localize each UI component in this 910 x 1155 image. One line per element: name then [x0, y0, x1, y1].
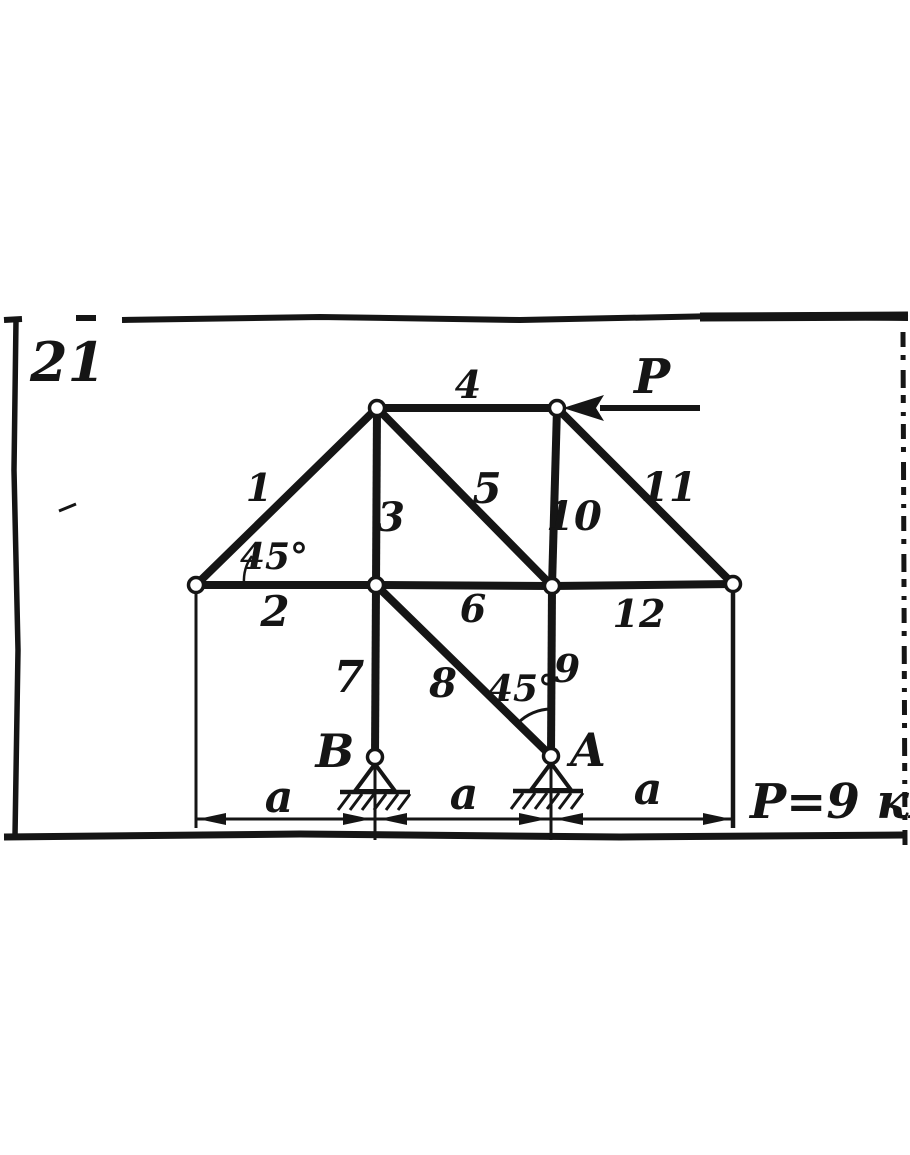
scanned-figure-page: 21 1 2 3 4 5 6 7 8 9 10 11 12 45° 45° B …: [0, 0, 910, 1155]
joint-mid-right: [545, 579, 560, 594]
angle-arc-a: [518, 709, 551, 723]
figure-border-right-dashed: [903, 332, 905, 845]
dim-arrow-a-right: [555, 813, 583, 825]
member-7-label: 7: [334, 652, 365, 703]
force-value-label: P=9 кН: [748, 774, 910, 830]
dim-arrow-a-left: [519, 813, 547, 825]
dim-arrow-b-right: [379, 813, 407, 825]
joint-top-left: [370, 401, 385, 416]
force-label: P: [632, 349, 672, 405]
truss-figure: 21 1 2 3 4 5 6 7 8 9 10 11 12 45° 45° B …: [0, 0, 910, 1155]
joint-top-right: [550, 401, 565, 416]
member-11-label: 11: [641, 464, 697, 511]
angle-label-left: 45°: [240, 536, 308, 578]
member-5-label: 5: [472, 464, 501, 513]
member-9-label: 9: [554, 646, 580, 691]
stray-mark: [59, 504, 76, 511]
member-4-label: 4: [455, 362, 481, 407]
member-10-label: 10: [546, 493, 602, 540]
member-12-label: 12: [613, 591, 666, 636]
figure-border-bottom: [4, 834, 903, 837]
support-b-label: B: [314, 724, 355, 778]
figure-border-left: [14, 320, 18, 836]
support-a-hatching: [511, 793, 583, 809]
joint-right: [726, 577, 741, 592]
support-a-label: A: [566, 723, 606, 777]
dim-arrow-left-end: [198, 813, 226, 825]
member-3-label: 3: [377, 494, 405, 541]
figure-border-top-dash: [4, 319, 22, 320]
truss-members: [196, 408, 733, 757]
joint-support-b: [368, 750, 383, 765]
figure-number: 21: [29, 330, 105, 394]
dim-arrow-right-end: [703, 813, 731, 825]
figure-border-top-thick: [700, 316, 908, 317]
member-1-label: 1: [246, 465, 272, 510]
joint-left: [189, 578, 204, 593]
dim-label-right: a: [634, 764, 663, 815]
dim-arrow-b-left: [343, 813, 371, 825]
member-12: [552, 584, 733, 586]
joint-support-a: [544, 749, 559, 764]
joint-center: [369, 578, 384, 593]
dim-label-mid: a: [450, 769, 479, 820]
member-7: [375, 585, 376, 757]
angle-label-a: 45°: [488, 668, 556, 710]
member-2-label: 2: [259, 587, 289, 636]
dim-label-left: a: [265, 772, 294, 823]
force-arrow: [563, 395, 700, 421]
member-6-label: 6: [460, 586, 486, 631]
member-8-label: 8: [428, 660, 457, 707]
